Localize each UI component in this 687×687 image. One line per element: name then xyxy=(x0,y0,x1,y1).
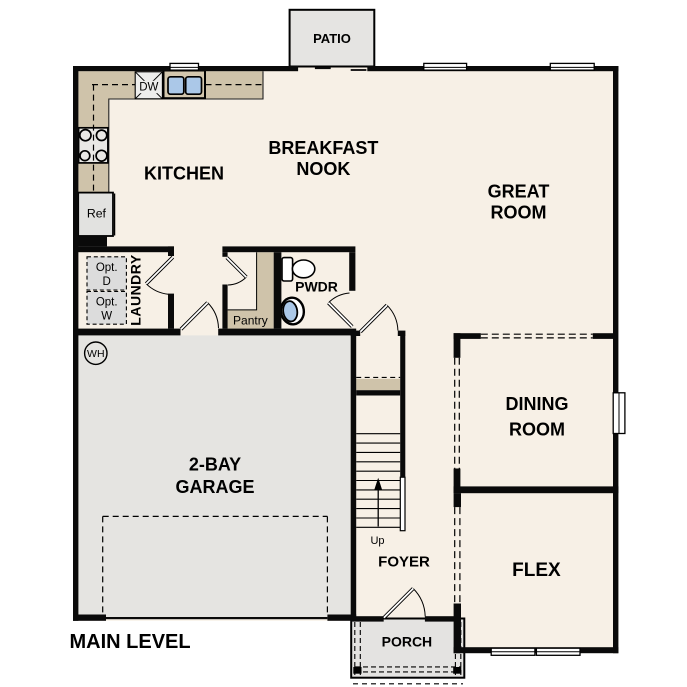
svg-text:DW: DW xyxy=(139,81,158,93)
svg-text:Opt.: Opt. xyxy=(96,297,118,309)
svg-text:MAIN LEVEL: MAIN LEVEL xyxy=(70,631,191,653)
svg-text:Pantry: Pantry xyxy=(233,314,268,328)
svg-text:Opt.: Opt. xyxy=(96,262,118,274)
svg-text:DINING: DINING xyxy=(506,394,569,414)
svg-text:FOYER: FOYER xyxy=(378,554,430,571)
svg-text:NOOK: NOOK xyxy=(296,159,350,179)
svg-text:BREAKFAST: BREAKFAST xyxy=(268,138,378,158)
svg-text:W: W xyxy=(101,311,112,323)
svg-text:2-BAY: 2-BAY xyxy=(189,455,241,475)
svg-text:ROOM: ROOM xyxy=(491,203,547,223)
svg-text:LAUNDRY: LAUNDRY xyxy=(128,254,144,326)
svg-text:GREAT: GREAT xyxy=(488,182,550,202)
svg-text:GARAGE: GARAGE xyxy=(175,477,254,497)
svg-text:D: D xyxy=(103,276,111,288)
svg-text:PORCH: PORCH xyxy=(382,634,433,650)
svg-text:KITCHEN: KITCHEN xyxy=(144,164,224,184)
svg-text:PATIO: PATIO xyxy=(313,31,351,46)
svg-text:Up: Up xyxy=(370,535,384,547)
svg-text:Ref: Ref xyxy=(87,206,107,220)
svg-text:PWDR: PWDR xyxy=(295,279,338,295)
svg-text:WH: WH xyxy=(87,348,105,360)
svg-text:FLEX: FLEX xyxy=(512,560,561,581)
svg-text:ROOM: ROOM xyxy=(509,420,565,440)
